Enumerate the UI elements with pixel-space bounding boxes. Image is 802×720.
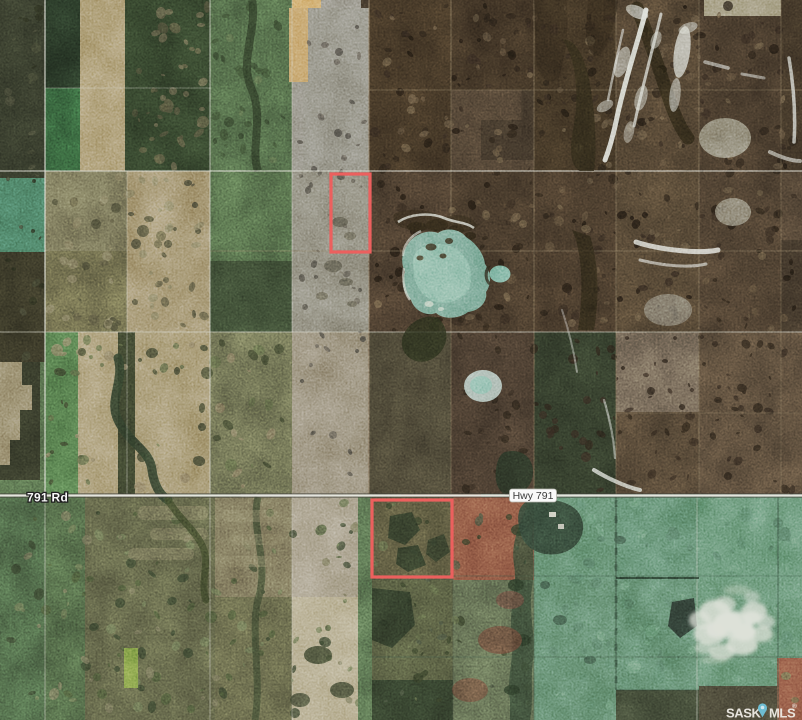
svg-text:®: ® xyxy=(792,702,797,710)
svg-text:791 Rd: 791 Rd xyxy=(27,491,68,505)
svg-text:Hwy 791: Hwy 791 xyxy=(513,490,554,502)
svg-text:SASK: SASK xyxy=(726,706,762,720)
